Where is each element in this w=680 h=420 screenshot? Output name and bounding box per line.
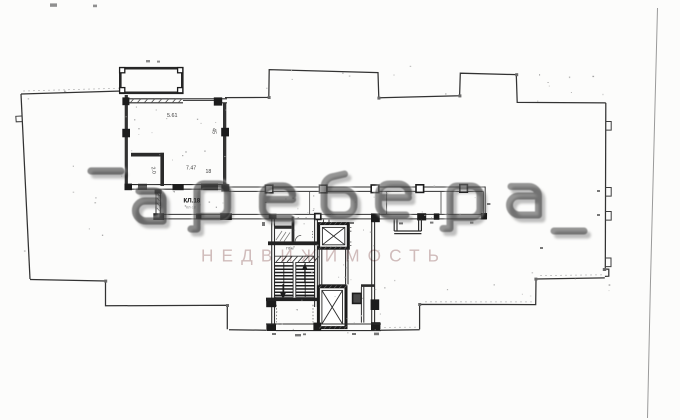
svg-text:2.0: 2.0 [150,166,157,174]
svg-text:5.61: 5.61 [167,113,178,119]
svg-text:7.47: 7.47 [186,166,196,172]
svg-text:45: 45 [211,128,217,134]
svg-text:КЛ.18: КЛ.18 [184,198,201,205]
svg-text:НЕДВИЖИМОСТЬ: НЕДВИЖИМОСТЬ [201,246,447,266]
svg-text:18: 18 [206,169,212,175]
